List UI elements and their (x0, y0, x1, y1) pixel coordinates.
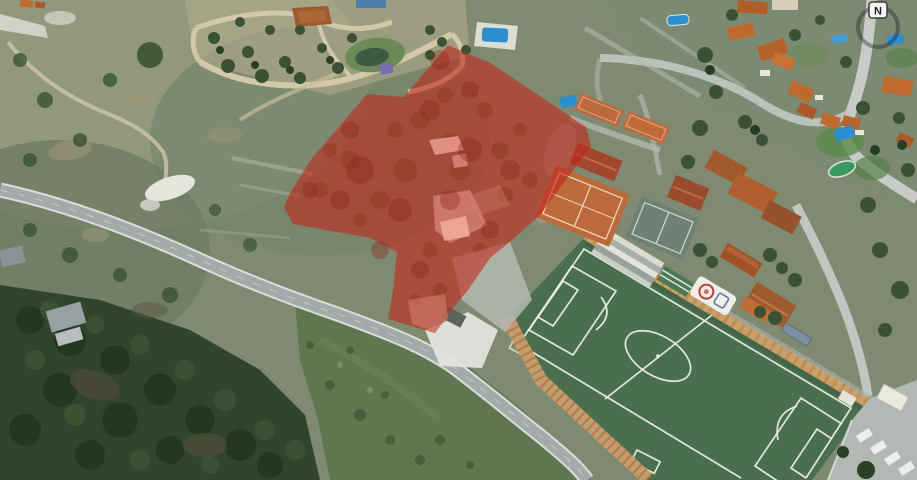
aerial-map-view: N (0, 0, 917, 480)
compass-north-label: N (874, 6, 882, 18)
pool (482, 27, 509, 42)
satellite-canvas: N (0, 0, 917, 480)
pool (667, 14, 690, 26)
blue-roof-structure (356, 0, 386, 8)
